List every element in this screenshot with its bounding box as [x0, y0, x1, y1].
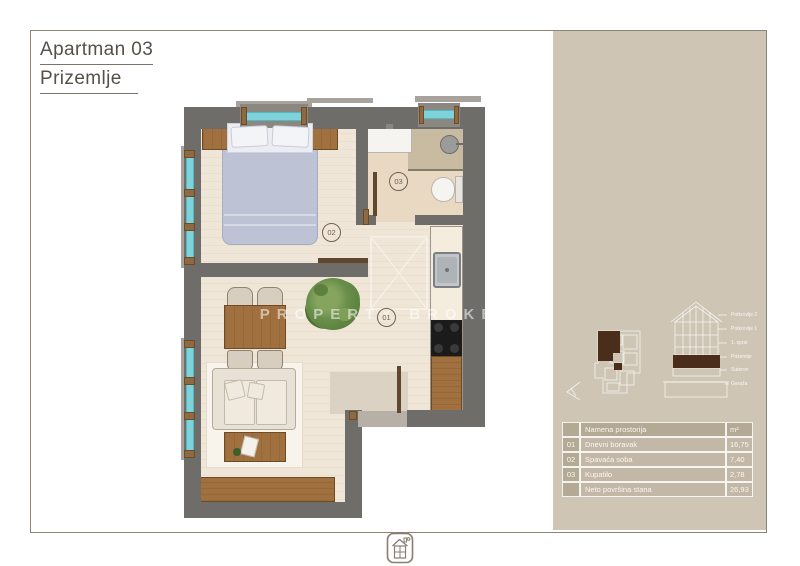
bathroom-window-jamb-right: [454, 106, 459, 124]
bathroom-door-leaf: [373, 172, 377, 216]
coffee-table-plant: [233, 448, 241, 456]
room-label-03: 03: [389, 172, 408, 191]
window-mullion: [184, 412, 195, 420]
exterior-sill-top-right: [415, 96, 481, 102]
bed-pillow-left: [230, 125, 268, 148]
room-label-01: 01: [377, 308, 396, 327]
window-mullion: [184, 450, 195, 458]
table-header-row: Namena prostorija m²: [562, 422, 753, 437]
bathroom-window-glass: [423, 110, 455, 119]
row-area: 2,78: [726, 467, 753, 482]
table-row: 01 Dnevni boravak 16,75: [562, 437, 753, 452]
wardrobe-outline: [370, 236, 428, 310]
row-num: 03: [562, 467, 580, 482]
area-table: Namena prostorija m² 01 Dnevni boravak 1…: [562, 422, 753, 497]
sofa-pillow: [247, 382, 266, 401]
table-row: 02 Spavaća soba 7,40: [562, 452, 753, 467]
section-floor-label: Prizemlje: [731, 354, 752, 360]
row-name: Kupatilo: [580, 467, 726, 482]
washbasin: [366, 126, 412, 153]
section-diagram: Potkrovlje 2 Potkrovlje 1 1. sprat Prize…: [663, 296, 763, 411]
wall-bedroom-divider: [196, 263, 368, 277]
entry-door-jamb: [349, 411, 357, 420]
blanket-fold: [224, 214, 316, 216]
section-floor-label: Potkrovlje 2: [731, 312, 757, 318]
title-floor: Prizemlje: [40, 65, 138, 94]
sideboard: [200, 477, 335, 502]
key-plan-unit-highlight: [598, 331, 620, 361]
footer-num: [562, 482, 580, 497]
washbasin-faucet: [386, 124, 393, 129]
bed-pillow-right: [271, 125, 309, 148]
blanket-fold: [224, 224, 316, 226]
entry-door-leaf: [397, 366, 401, 413]
row-area: 7,40: [726, 452, 753, 467]
brand-logo-icon: [386, 532, 414, 564]
bedroom-window-jamb-right: [301, 107, 307, 125]
kitchen-cabinet: [431, 356, 462, 412]
living-side-window-glass: [186, 342, 194, 456]
table-footer-row: Neto površina stana 26,93: [562, 482, 753, 497]
window-mullion: [184, 223, 195, 231]
table-header-num: [562, 422, 580, 437]
wall-right: [463, 107, 485, 427]
bedroom-window-jamb-left: [241, 107, 247, 125]
exterior-sill-top-left: [307, 98, 373, 103]
table-header-area: m²: [726, 422, 753, 437]
section-floor-label: 1. sprat: [731, 340, 748, 346]
entry-threshold: [358, 411, 407, 427]
wall-bottom: [184, 502, 362, 518]
window-mullion: [184, 257, 195, 265]
wall-bathroom-left: [356, 129, 368, 217]
cooktop: [431, 320, 462, 356]
window-mullion: [184, 189, 195, 197]
bedroom-door-leaf: [318, 258, 368, 263]
toilet-bowl: [431, 177, 455, 202]
toilet-tank: [455, 176, 463, 203]
window-mullion: [184, 150, 195, 158]
footer-area: 26,93: [726, 482, 753, 497]
title-apartment: Apartman 03: [40, 36, 153, 65]
bedroom-window-glass: [246, 112, 302, 121]
north-arrow-icon: [562, 379, 584, 403]
room-label-02: 02: [322, 223, 341, 242]
wall-entry-right: [407, 410, 485, 427]
bedroom-side-window-glass: [186, 150, 194, 264]
sink-drain: [445, 268, 449, 272]
bedroom-door-jamb: [363, 209, 369, 225]
row-num: 02: [562, 452, 580, 467]
bathroom-window-jamb-left: [419, 106, 424, 124]
window-mullion: [184, 340, 195, 348]
section-floor-label: Suteren: [731, 367, 749, 373]
row-name: Dnevni boravak: [580, 437, 726, 452]
wall-bathroom-bottom-right: [415, 215, 463, 225]
table-row: 03 Kupatilo 2,78: [562, 467, 753, 482]
window-mullion: [184, 377, 195, 385]
section-floor-label: Potkrovlje 1: [731, 326, 757, 332]
row-area: 16,75: [726, 437, 753, 452]
table-header-name: Namena prostorija: [580, 422, 726, 437]
page-title: Apartman 03 Prizemlje: [40, 36, 153, 94]
section-floor-label: Garaža: [731, 381, 747, 387]
row-num: 01: [562, 437, 580, 452]
row-name: Spavaća soba: [580, 452, 726, 467]
footer-name: Neto površina stana: [580, 482, 726, 497]
floorplan-sheet: Apartman 03 Prizemlje: [0, 0, 800, 566]
section-unit-highlight: [673, 355, 720, 368]
shower-arm: [456, 143, 464, 145]
